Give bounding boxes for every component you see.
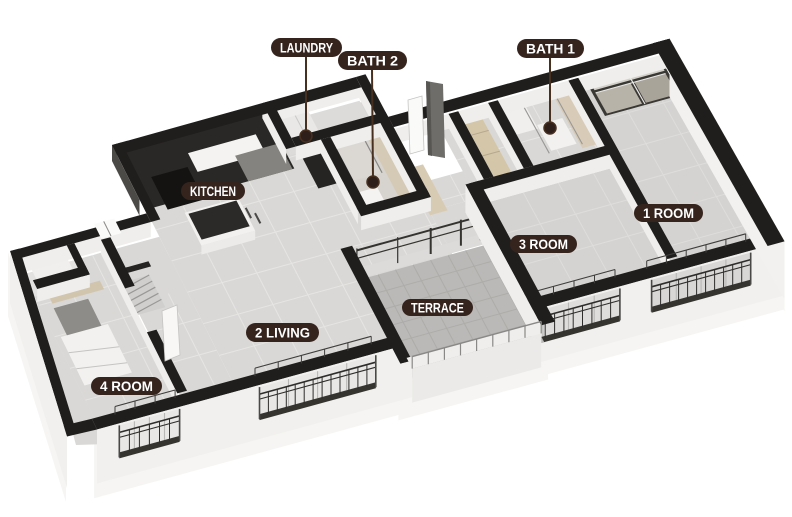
svg-text:TERRACE: TERRACE <box>411 300 464 315</box>
svg-text:4 ROOM: 4 ROOM <box>100 379 153 394</box>
svg-text:1 ROOM: 1 ROOM <box>643 206 694 221</box>
svg-text:2 LIVING: 2 LIVING <box>255 325 310 340</box>
svg-text:KITCHEN: KITCHEN <box>190 184 236 199</box>
svg-text:3 ROOM: 3 ROOM <box>519 237 568 252</box>
svg-text:BATH 2: BATH 2 <box>347 53 398 68</box>
svg-text:BATH 1: BATH 1 <box>526 41 575 56</box>
svg-text:LAUNDRY: LAUNDRY <box>280 40 333 55</box>
